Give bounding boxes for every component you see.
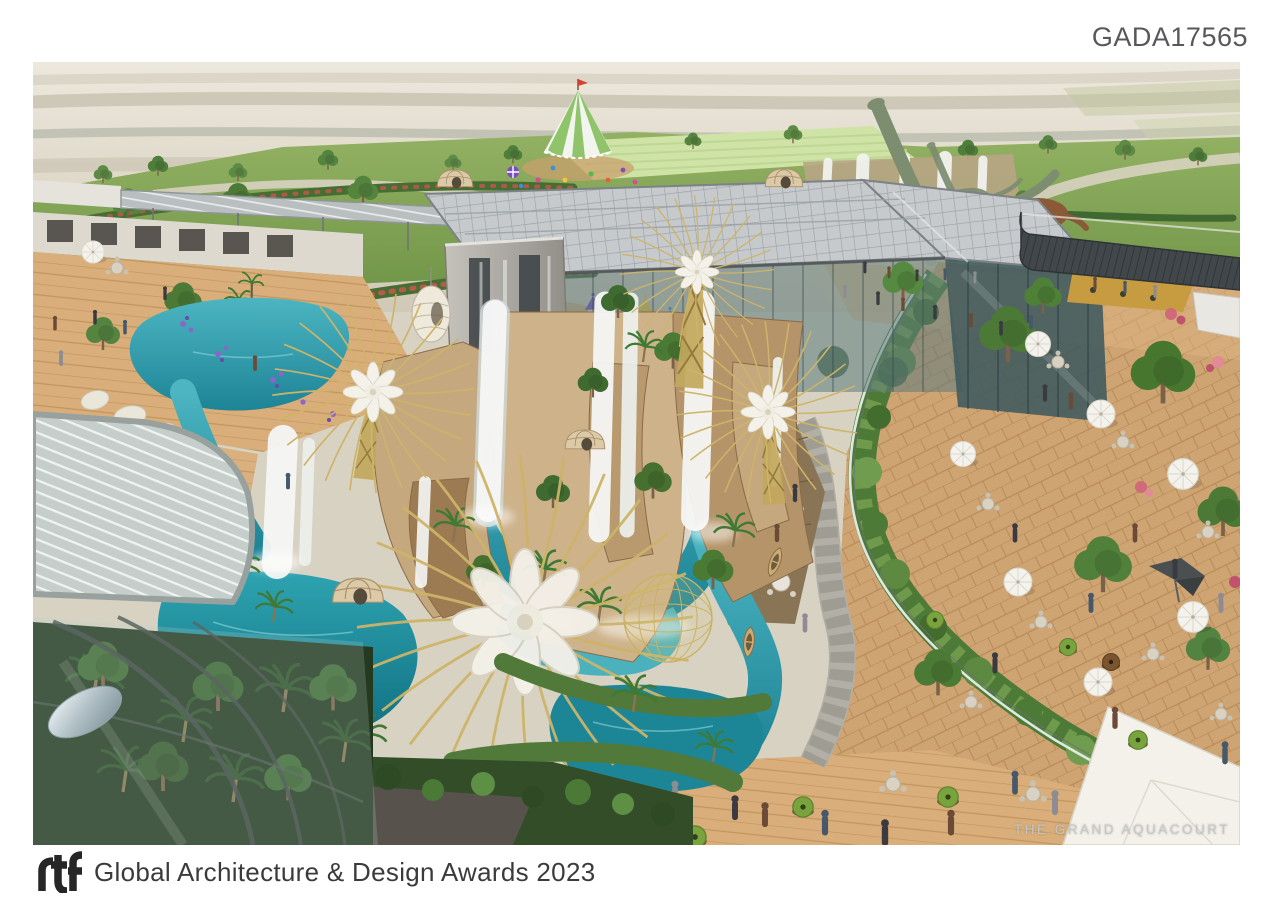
award-board-page: GADA17565	[0, 0, 1273, 900]
architectural-rendering: THE GRAND AQUACOURT	[33, 62, 1240, 845]
project-watermark: THE GRAND AQUACOURT	[1014, 822, 1230, 837]
footer: rtf Global Architecture & Design Awards …	[36, 851, 595, 893]
award-title: Global Architecture & Design Awards 2023	[94, 857, 595, 888]
rtf-logo	[36, 851, 83, 893]
golden-lattice-dome	[624, 574, 712, 662]
submission-code: GADA17565	[1092, 22, 1248, 53]
